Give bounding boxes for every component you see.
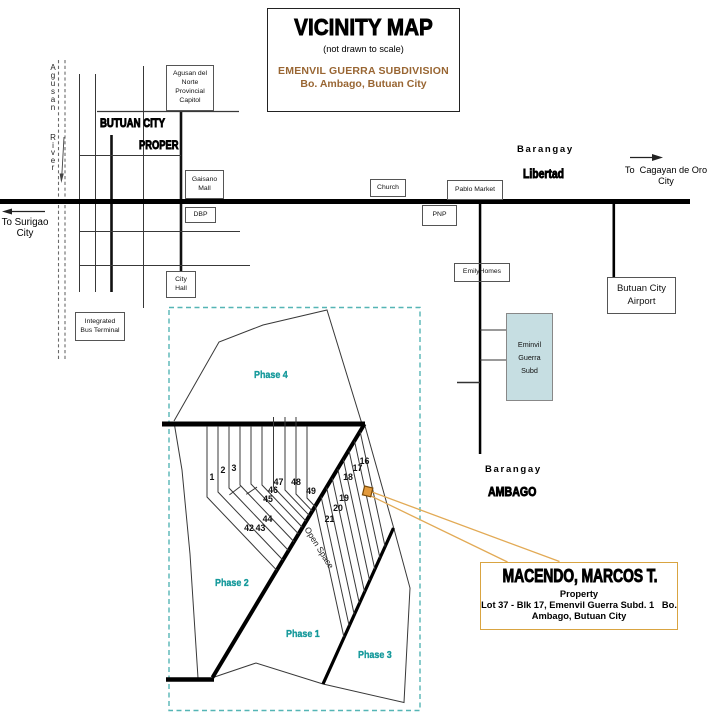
svg-text:20: 20 [333,503,343,513]
svg-text:45: 45 [263,494,273,504]
svg-text:21: 21 [325,514,335,524]
svg-text:18: 18 [343,472,353,482]
svg-text:3: 3 [232,463,237,473]
svg-text:1: 1 [210,472,215,482]
svg-text:49: 49 [306,486,316,496]
svg-text:42: 42 [244,523,254,533]
svg-text:17: 17 [353,463,363,473]
svg-text:19: 19 [339,493,349,503]
svg-text:2: 2 [221,465,226,475]
svg-text:44: 44 [263,514,273,524]
svg-text:47: 47 [274,477,284,487]
svg-text:43: 43 [256,523,266,533]
svg-text:48: 48 [291,477,301,487]
